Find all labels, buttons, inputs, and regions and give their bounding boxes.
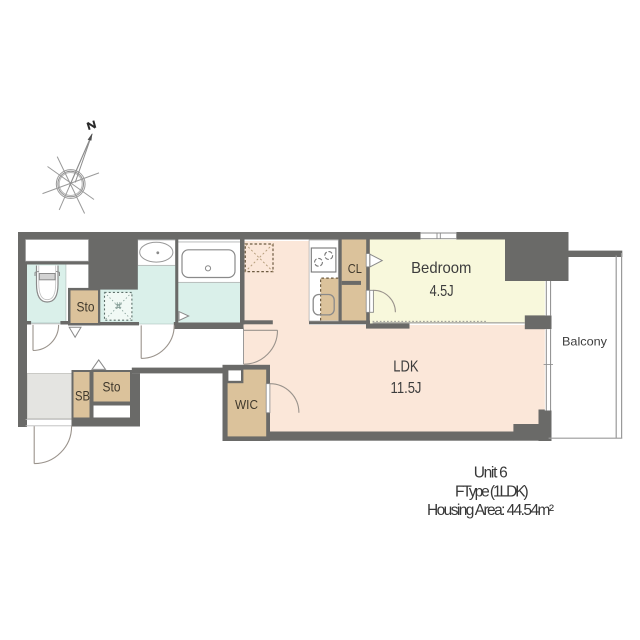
svg-text:SB: SB: [75, 388, 90, 404]
svg-text:Balcony: Balcony: [562, 335, 607, 349]
svg-text:11.5J: 11.5J: [391, 380, 422, 397]
svg-text:Sto: Sto: [77, 298, 95, 314]
svg-text:4.5J: 4.5J: [430, 283, 454, 300]
svg-text:LDK: LDK: [393, 358, 419, 375]
svg-text:Bedroom: Bedroom: [411, 260, 471, 277]
svg-text:Sto: Sto: [103, 379, 121, 395]
svg-text:CL: CL: [348, 261, 362, 276]
svg-text:Unit 6: Unit 6: [474, 465, 508, 482]
svg-text:FType (1LDK): FType (1LDK): [455, 483, 529, 500]
svg-text:WIC: WIC: [235, 398, 258, 412]
svg-text:Housing Area: 44.54m²: Housing Area: 44.54m²: [427, 502, 554, 519]
